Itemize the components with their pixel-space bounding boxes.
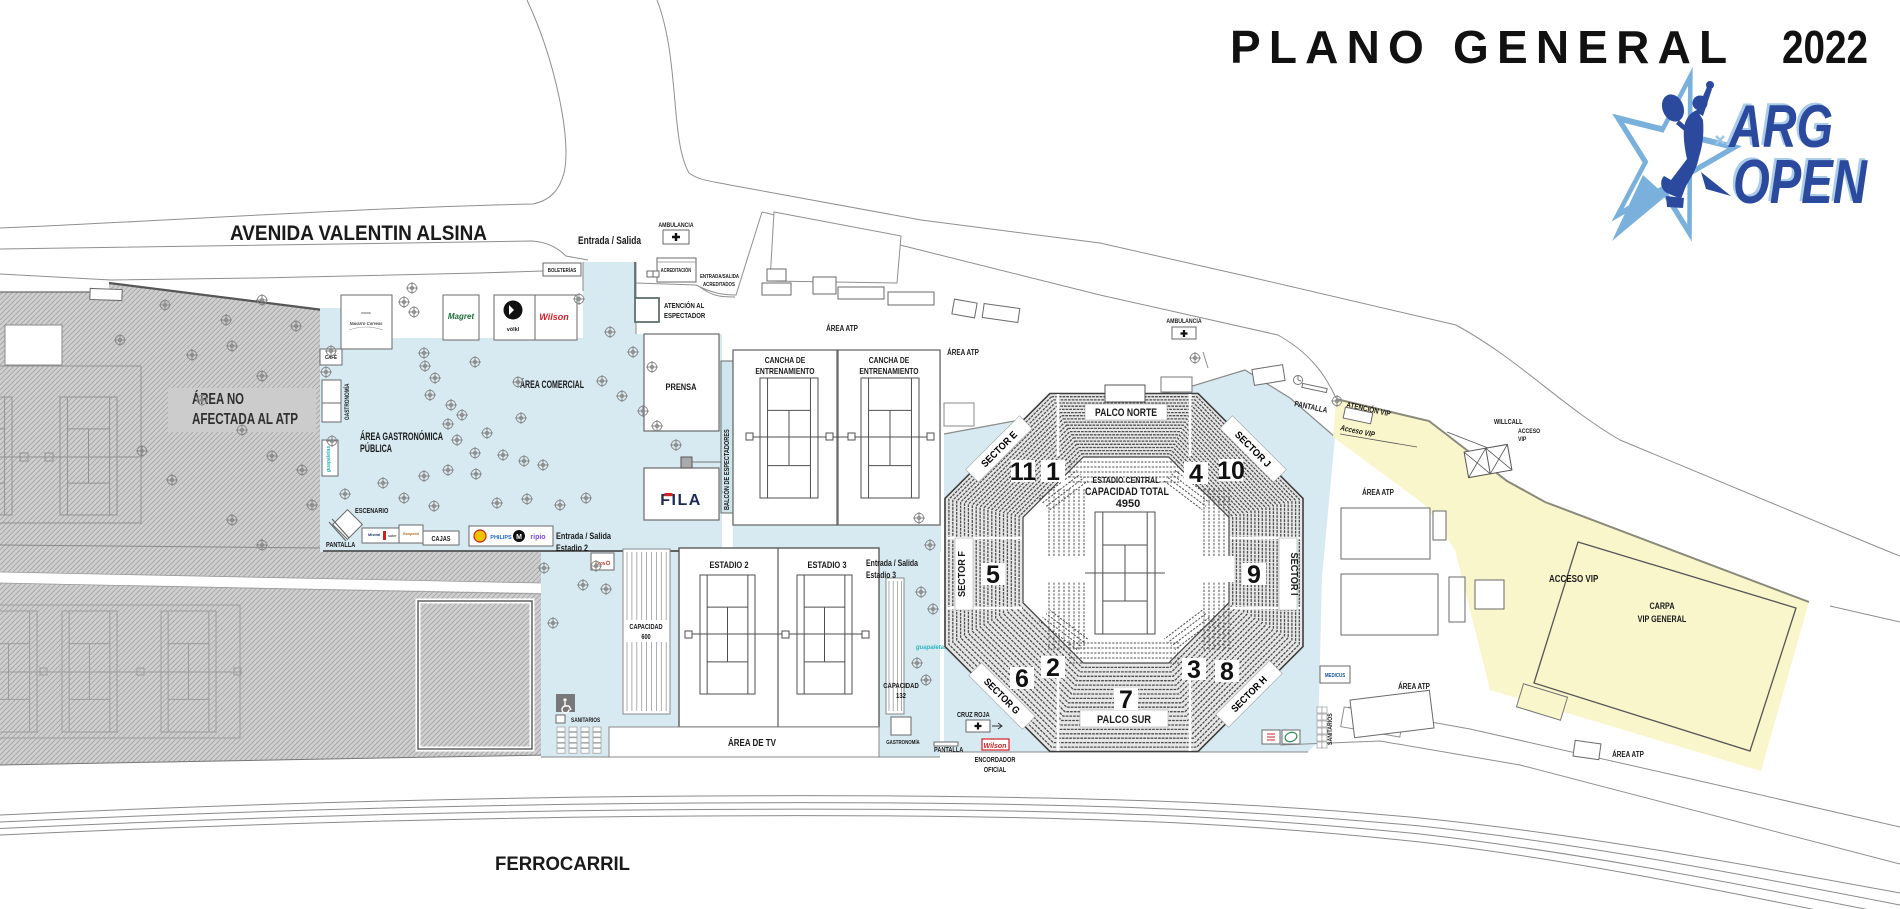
svg-text:ENTRENAMIENTO: ENTRENAMIENTO xyxy=(859,366,918,376)
svg-text:Navarro Correas: Navarro Correas xyxy=(350,321,383,326)
svg-text:PRENSA: PRENSA xyxy=(666,382,697,393)
svg-text:CANCHA DE: CANCHA DE xyxy=(765,355,806,365)
svg-text:1: 1 xyxy=(1046,458,1060,486)
svg-text:Magret: Magret xyxy=(448,312,475,321)
svg-text:AMBULANCIA: AMBULANCIA xyxy=(1166,318,1201,325)
svg-text:ÁREA ATP: ÁREA ATP xyxy=(947,348,979,357)
svg-text:Estadio 2: Estadio 2 xyxy=(556,543,588,554)
svg-text:völkl: völkl xyxy=(507,327,520,333)
svg-text:ÁREA NO: ÁREA NO xyxy=(192,389,244,408)
svg-text:PÚBLICA: PÚBLICA xyxy=(360,442,392,455)
svg-text:PLANO GENERAL: PLANO GENERAL xyxy=(1230,21,1735,73)
svg-text:ÁREA ATP: ÁREA ATP xyxy=(1398,682,1430,691)
svg-text:SANITARIOS: SANITARIOS xyxy=(1327,713,1334,745)
svg-text:Wilson: Wilson xyxy=(984,743,1007,750)
svg-text:SANITARIOS: SANITARIOS xyxy=(571,718,600,724)
svg-text:BOLETERÍAS: BOLETERÍAS xyxy=(548,266,577,274)
svg-text:Entrada / Salida: Entrada / Salida xyxy=(578,235,642,247)
svg-text:ripio: ripio xyxy=(530,534,545,541)
svg-text:CRUZ ROJA: CRUZ ROJA xyxy=(957,712,990,719)
svg-text:CAPACIDAD: CAPACIDAD xyxy=(629,624,662,631)
svg-text:BALCÓN DE ESPECTADORES: BALCÓN DE ESPECTADORES xyxy=(722,429,731,510)
svg-text:ENCORDADOR: ENCORDADOR xyxy=(975,757,1016,764)
svg-text:guapaletas: guapaletas xyxy=(915,645,948,651)
svg-text:guapaletas: guapaletas xyxy=(326,446,332,473)
svg-text:CAJAS: CAJAS xyxy=(432,536,451,543)
svg-text:132: 132 xyxy=(896,691,906,700)
svg-text:ACCESO VIP: ACCESO VIP xyxy=(1549,574,1599,585)
svg-text:PALCO NORTE: PALCO NORTE xyxy=(1095,407,1157,419)
svg-text:PHILIPS: PHILIPS xyxy=(490,535,512,541)
svg-text:ESPECTADOR: ESPECTADOR xyxy=(664,311,706,320)
svg-text:Entrada / Salida: Entrada / Salida xyxy=(556,531,612,542)
svg-text:4950: 4950 xyxy=(1116,498,1140,510)
svg-text:CAPACIDAD: CAPACIDAD xyxy=(883,681,919,690)
svg-text:SECTOR I: SECTOR I xyxy=(1288,553,1299,596)
svg-text:OFICIAL: OFICIAL xyxy=(984,767,1007,774)
svg-text:600: 600 xyxy=(641,634,650,641)
svg-text:SECTOR F: SECTOR F xyxy=(957,551,968,597)
svg-text:Wilson: Wilson xyxy=(539,312,569,322)
svg-text:8: 8 xyxy=(1220,658,1234,686)
svg-text:Bonpoint: Bonpoint xyxy=(403,532,420,536)
svg-text:MEDICUS: MEDICUS xyxy=(1325,673,1346,679)
svg-text:ÁREA ATP: ÁREA ATP xyxy=(1612,750,1644,759)
svg-text:2022: 2022 xyxy=(1782,21,1868,73)
svg-text:9: 9 xyxy=(1247,561,1261,589)
svg-text:M: M xyxy=(516,534,522,541)
svg-text:ESTADIO 3: ESTADIO 3 xyxy=(808,560,847,570)
svg-text:PANTALLA: PANTALLA xyxy=(934,747,963,754)
svg-text:ESTADIO CENTRAL: ESTADIO CENTRAL xyxy=(1093,475,1160,485)
svg-text:WILLCALL: WILLCALL xyxy=(1494,419,1523,426)
svg-text:GASTRONOMÍA: GASTRONOMÍA xyxy=(343,383,351,420)
svg-text:ÁREA ATP: ÁREA ATP xyxy=(826,324,858,333)
svg-text:*****: ***** xyxy=(361,312,371,318)
svg-text:7: 7 xyxy=(1119,686,1133,714)
svg-text:4: 4 xyxy=(1189,460,1203,488)
svg-text:FERROCARRIL: FERROCARRIL xyxy=(495,854,630,875)
svg-text:Estadio 3: Estadio 3 xyxy=(866,570,896,580)
svg-text:CANCHA DE: CANCHA DE xyxy=(869,355,910,365)
svg-text:GASTRONOMÍA: GASTRONOMÍA xyxy=(886,738,920,746)
svg-text:ACREDITADOS: ACREDITADOS xyxy=(703,282,735,288)
svg-text:OPEN: OPEN xyxy=(1733,148,1868,217)
svg-text:3: 3 xyxy=(1187,656,1201,684)
svg-text:ATENCIÓN AL: ATENCIÓN AL xyxy=(664,301,705,310)
svg-text:6: 6 xyxy=(1015,665,1029,693)
svg-text:ACCESO: ACCESO xyxy=(1518,428,1540,435)
svg-text:CARPA: CARPA xyxy=(1649,601,1674,611)
svg-text:PALCO SUR: PALCO SUR xyxy=(1097,714,1151,726)
svg-text:ACREDITACIÓN: ACREDITACIÓN xyxy=(661,266,692,274)
svg-text:5: 5 xyxy=(986,561,1000,589)
svg-text:VIP GENERAL: VIP GENERAL xyxy=(1638,614,1687,624)
svg-text:2: 2 xyxy=(1046,654,1060,682)
svg-text:AFECTADA AL ATP: AFECTADA AL ATP xyxy=(192,411,298,428)
svg-text:ESCENARIO: ESCENARIO xyxy=(355,508,389,515)
svg-text:PANTALLA: PANTALLA xyxy=(326,542,355,549)
svg-text:AMBULANCIA: AMBULANCIA xyxy=(658,222,693,229)
svg-text:ENTRENAMIENTO: ENTRENAMIENTO xyxy=(755,366,814,376)
svg-text:CAPACIDAD TOTAL: CAPACIDAD TOTAL xyxy=(1085,486,1169,498)
svg-text:ÁREA DE TV: ÁREA DE TV xyxy=(728,736,776,749)
svg-text:ESTADIO 2: ESTADIO 2 xyxy=(710,560,749,570)
svg-text:ÁREA COMERCIAL: ÁREA COMERCIAL xyxy=(520,378,584,391)
svg-text:Entrada / Salida: Entrada / Salida xyxy=(866,558,919,568)
svg-text:11: 11 xyxy=(1010,458,1037,486)
svg-text:Mistral: Mistral xyxy=(368,533,380,537)
svg-text:VIP: VIP xyxy=(1518,436,1527,443)
svg-text:ÁREA GASTRONÓMICA: ÁREA GASTRONÓMICA xyxy=(360,430,443,443)
svg-text:ÁREA ATP: ÁREA ATP xyxy=(1362,488,1394,497)
svg-text:suter: suter xyxy=(388,534,397,538)
svg-text:10: 10 xyxy=(1217,457,1245,485)
svg-text:ENTRADA/SALIDA: ENTRADA/SALIDA xyxy=(700,274,739,280)
svg-text:AVENIDA VALENTIN ALSINA: AVENIDA VALENTIN ALSINA xyxy=(230,222,487,245)
